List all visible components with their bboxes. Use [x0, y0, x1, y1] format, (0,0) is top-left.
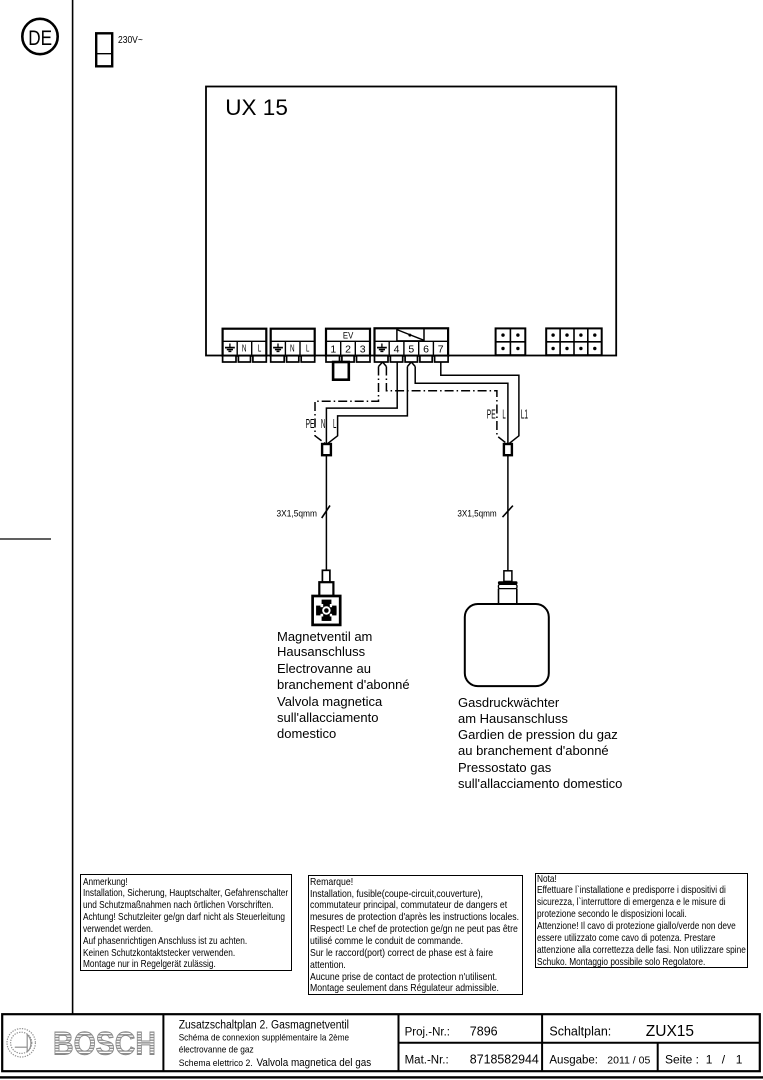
svg-text:Schéma de connexion supplément: Schéma de connexion supplémentaire la 2è…	[179, 1033, 349, 1043]
svg-text:3X1,5qmm: 3X1,5qmm	[457, 509, 496, 520]
svg-text:3: 3	[360, 343, 366, 355]
svg-text:Valvola magnetica del gas: Valvola magnetica del gas	[257, 1057, 372, 1069]
svg-text:2011 / 05: 2011 / 05	[607, 1055, 650, 1067]
svg-text:Ausgabe:: Ausgabe:	[549, 1055, 598, 1067]
svg-text:1: 1	[330, 343, 336, 355]
svg-text:2: 2	[345, 343, 351, 355]
svg-text:L: L	[333, 416, 336, 431]
svg-text:Schema elettrico 2.: Schema elettrico 2.	[179, 1058, 253, 1068]
svg-text:N: N	[290, 343, 295, 355]
svg-text:8718582944: 8718582944	[470, 1053, 539, 1067]
svg-text:Schaltplan:: Schaltplan:	[549, 1025, 611, 1039]
svg-text:L1: L1	[521, 406, 528, 421]
svg-text:3X1,5qmm: 3X1,5qmm	[277, 508, 318, 519]
svg-text:7: 7	[438, 343, 444, 355]
svg-text:L: L	[306, 343, 309, 355]
svg-text:PE: PE	[487, 406, 496, 421]
svg-text:EV: EV	[343, 331, 354, 342]
svg-text:Mat.-Nr.:: Mat.-Nr.:	[405, 1055, 449, 1067]
svg-text:Seite :: Seite :	[665, 1053, 699, 1067]
svg-text:PE: PE	[306, 416, 315, 431]
svg-text:DE: DE	[28, 26, 52, 50]
svg-text:1: 1	[736, 1053, 743, 1067]
svg-text:ZUX15: ZUX15	[646, 1023, 694, 1040]
svg-text:L: L	[502, 406, 505, 421]
svg-text:4: 4	[394, 343, 400, 355]
svg-text:électrovanne de gaz: électrovanne de gaz	[179, 1045, 254, 1055]
svg-text:BOSCH: BOSCH	[53, 1026, 156, 1062]
svg-text:/: /	[722, 1053, 726, 1067]
svg-text:N: N	[321, 416, 326, 431]
svg-text:6: 6	[423, 343, 429, 355]
svg-text:Proj.-Nr.:: Proj.-Nr.:	[405, 1027, 450, 1039]
svg-text:5: 5	[408, 343, 414, 355]
svg-text:1: 1	[706, 1053, 713, 1067]
svg-text:Zusatzschaltplan 2. Gasmagnetv: Zusatzschaltplan 2. Gasmagnetventil	[179, 1020, 349, 1032]
svg-text:N: N	[242, 343, 247, 355]
svg-text:7896: 7896	[470, 1025, 498, 1039]
svg-text:230V~: 230V~	[118, 35, 143, 46]
svg-text:L: L	[258, 343, 261, 355]
svg-text:UX 15: UX 15	[225, 95, 288, 120]
